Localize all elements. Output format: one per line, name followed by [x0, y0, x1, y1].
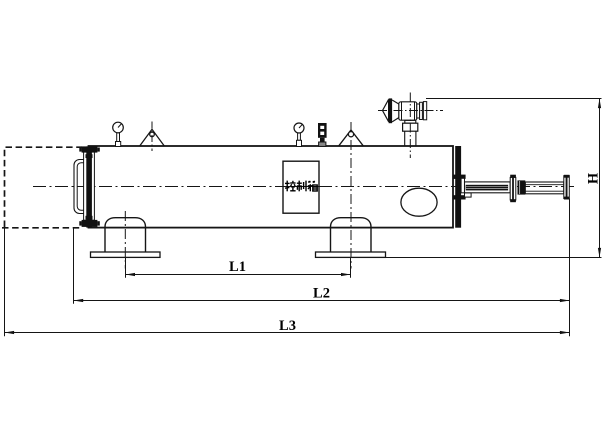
svg-text:L2: L2	[313, 286, 330, 302]
svg-text:H: H	[586, 172, 602, 184]
svg-text:L3: L3	[279, 318, 296, 334]
svg-text:L1: L1	[229, 259, 246, 275]
